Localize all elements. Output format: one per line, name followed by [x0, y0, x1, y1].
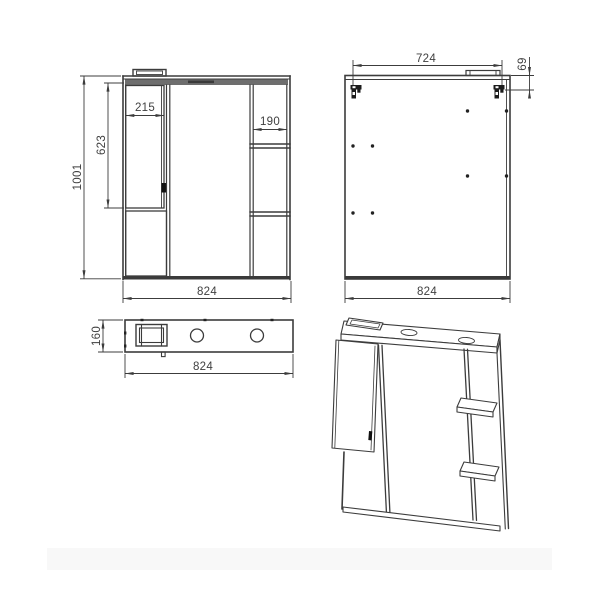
dim-front-overall-width: 824: [197, 286, 217, 298]
top-lamp-hole-left: [191, 329, 204, 342]
dim-back-hanger-offset: 69: [517, 57, 529, 70]
back-view-dimensions: [345, 57, 534, 303]
dim-front-shelf-width: 190: [260, 116, 280, 128]
iso-door-handle: [368, 431, 372, 441]
technical-drawing-sheet: 1001 623 215 190 824: [0, 0, 600, 600]
front-shelves: [250, 144, 290, 216]
back-hanger-right: [494, 85, 505, 99]
back-view: [345, 71, 510, 280]
iso-shelf-lower: [460, 462, 499, 481]
drawing-canvas: 1001 623 215 190 824: [0, 0, 600, 600]
top-cabinet-box: [136, 325, 167, 347]
top-lamp-hole-right: [251, 329, 264, 342]
top-view: [124, 319, 293, 357]
dim-front-door-height: 623: [96, 135, 108, 155]
front-door-handle: [162, 183, 167, 193]
dim-front-overall-height: 1001: [72, 164, 84, 191]
dim-top-depth: 160: [91, 326, 103, 346]
front-open-shelf-lower: [126, 211, 167, 276]
dim-top-overall-width: 824: [193, 361, 213, 373]
dim-back-hanger-span: 724: [416, 53, 436, 65]
front-view-dimensions: [80, 76, 291, 303]
front-view: [123, 70, 290, 280]
perspective-view: [332, 318, 509, 531]
back-bottom-edge: [345, 276, 510, 279]
back-screw-holes: [351, 109, 508, 214]
front-light-box: [133, 70, 166, 77]
iso-shelf-upper: [457, 398, 497, 417]
dim-back-overall-width: 824: [417, 286, 437, 298]
dim-front-door-width: 215: [135, 102, 155, 114]
footer-bar: [47, 548, 552, 570]
back-hanger-left: [351, 85, 362, 99]
